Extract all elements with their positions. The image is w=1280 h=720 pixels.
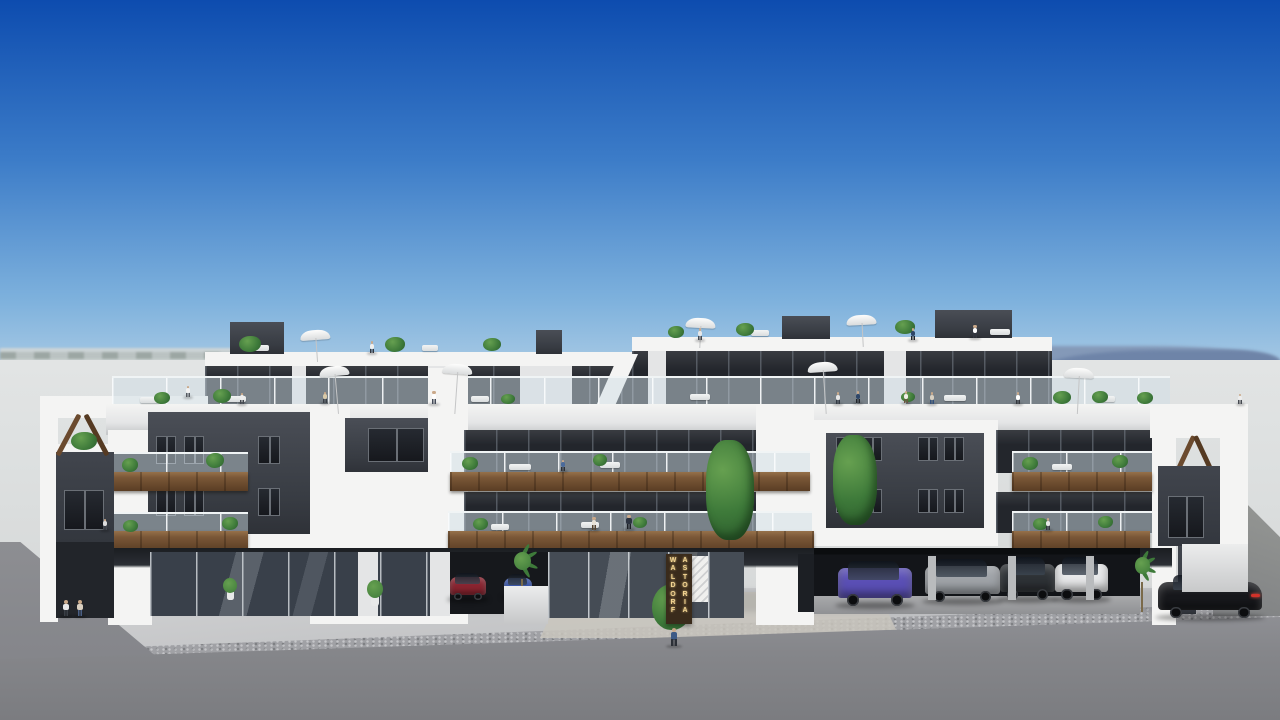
sign-letter: L xyxy=(671,574,675,582)
sign-text-column-2: ASTORIA xyxy=(679,557,691,624)
left-cap-recess xyxy=(56,542,114,618)
window xyxy=(862,437,882,461)
window xyxy=(258,488,280,516)
window xyxy=(1168,496,1204,538)
window xyxy=(944,489,964,513)
window xyxy=(836,437,856,461)
pier xyxy=(358,552,378,616)
wood-balcony-band xyxy=(1012,472,1152,491)
window xyxy=(944,437,964,461)
right-cap-band xyxy=(1150,404,1248,438)
window-wide xyxy=(368,428,424,462)
horizon-treeline-left xyxy=(0,352,240,359)
roof-box-large xyxy=(935,310,1012,338)
window xyxy=(258,436,280,464)
scene: WALDORF ASTORIA xyxy=(0,0,1280,720)
parking-pillar xyxy=(1086,556,1094,600)
sign-letter: A xyxy=(682,607,687,615)
sign-letter: O xyxy=(682,582,687,590)
roof-box xyxy=(230,322,284,354)
parking-pillar xyxy=(1008,556,1016,600)
window xyxy=(918,437,938,461)
wood-balcony-band xyxy=(450,472,810,491)
window xyxy=(836,489,856,513)
roof-box xyxy=(782,316,830,339)
sign-letter: F xyxy=(671,607,675,615)
right-cap-planter xyxy=(1182,544,1248,592)
sign-text-column-1: WALDORF xyxy=(667,557,679,624)
entrance-glass-wall xyxy=(548,552,744,618)
entrance-stair xyxy=(690,556,708,602)
sign-letter: O xyxy=(670,591,675,599)
entrance-sign: WALDORF ASTORIA xyxy=(666,554,692,624)
service-door xyxy=(798,554,814,612)
sign-letter: A xyxy=(670,565,675,573)
sign-letter: R xyxy=(682,591,687,599)
entrance-planter xyxy=(504,586,548,624)
window xyxy=(64,490,104,530)
sign-letter: S xyxy=(683,565,688,573)
storefront-glass-left xyxy=(150,552,440,616)
pier xyxy=(430,552,450,616)
parking-pillar xyxy=(928,556,936,600)
roof-box xyxy=(536,330,562,354)
sign-letter: T xyxy=(683,574,687,582)
window xyxy=(862,489,882,513)
window xyxy=(918,489,938,513)
sign-letter: D xyxy=(670,582,675,590)
wood-balcony-band xyxy=(112,472,248,491)
